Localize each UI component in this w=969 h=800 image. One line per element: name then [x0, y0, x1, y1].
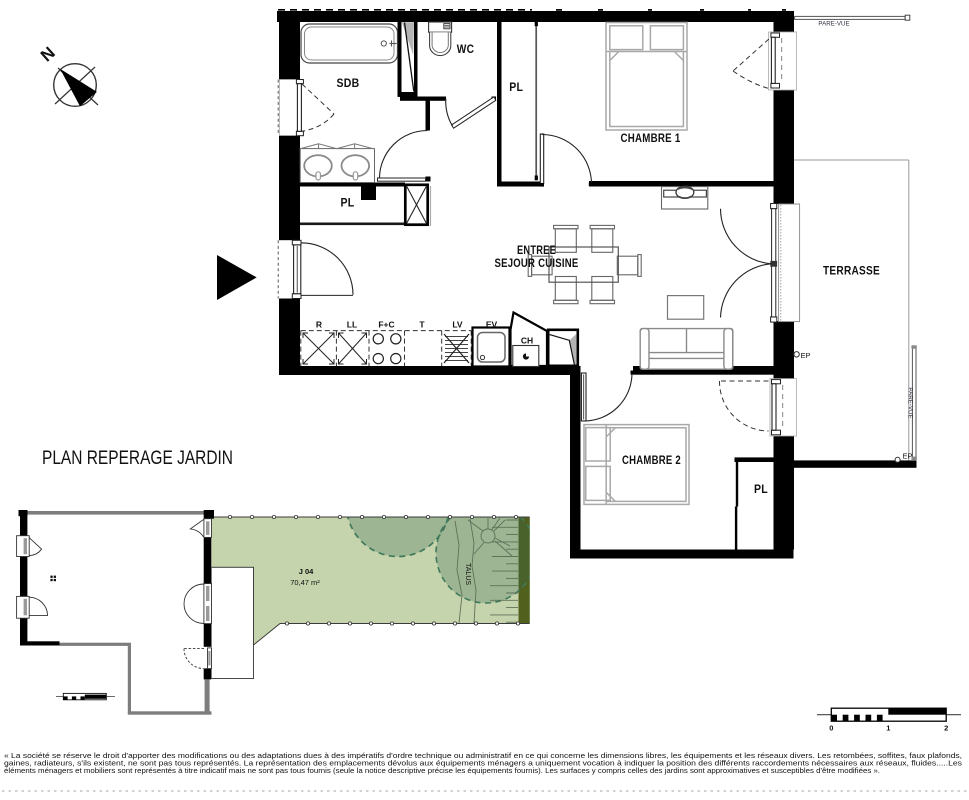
svg-text:ENTREE: ENTREE: [517, 245, 556, 257]
svg-text:LV: LV: [452, 320, 463, 330]
svg-text:PL: PL: [509, 82, 523, 94]
svg-text:2: 2: [944, 724, 948, 733]
svg-text:PL: PL: [341, 198, 355, 210]
svg-text:PL: PL: [754, 484, 768, 496]
svg-text:CH: CH: [521, 336, 533, 346]
svg-text:TERRASSE: TERRASSE: [823, 266, 880, 278]
svg-text:éléments ménagers et mobiliers: éléments ménagers et mobiliers sont repr…: [4, 766, 880, 775]
svg-text:F+C: F+C: [378, 320, 394, 330]
svg-text:TALUS: TALUS: [464, 563, 471, 585]
svg-text:PARE-VUE: PARE-VUE: [818, 20, 849, 27]
svg-text:J 04: J 04: [299, 567, 314, 576]
svg-text:PLAN REPERAGE JARDIN: PLAN REPERAGE JARDIN: [42, 448, 233, 469]
svg-text:CHAMBRE 2: CHAMBRE 2: [622, 455, 681, 467]
svg-text:SEJOUR CUISINE: SEJOUR CUISINE: [495, 258, 579, 270]
svg-text:R: R: [316, 320, 322, 330]
svg-text:T: T: [419, 320, 425, 330]
svg-text:70,47 m²: 70,47 m²: [290, 578, 320, 587]
svg-text:EP: EP: [801, 351, 811, 360]
svg-text:SDB: SDB: [337, 78, 360, 90]
svg-text:0: 0: [829, 724, 833, 733]
svg-text:LL: LL: [347, 320, 357, 330]
svg-text:1: 1: [886, 724, 890, 733]
svg-text:CHAMBRE 1: CHAMBRE 1: [621, 133, 681, 145]
svg-text:EV: EV: [486, 320, 498, 330]
svg-text:PARE-VUE: PARE-VUE: [906, 387, 913, 418]
svg-text:EP: EP: [903, 452, 913, 461]
svg-text:WC: WC: [457, 44, 475, 56]
